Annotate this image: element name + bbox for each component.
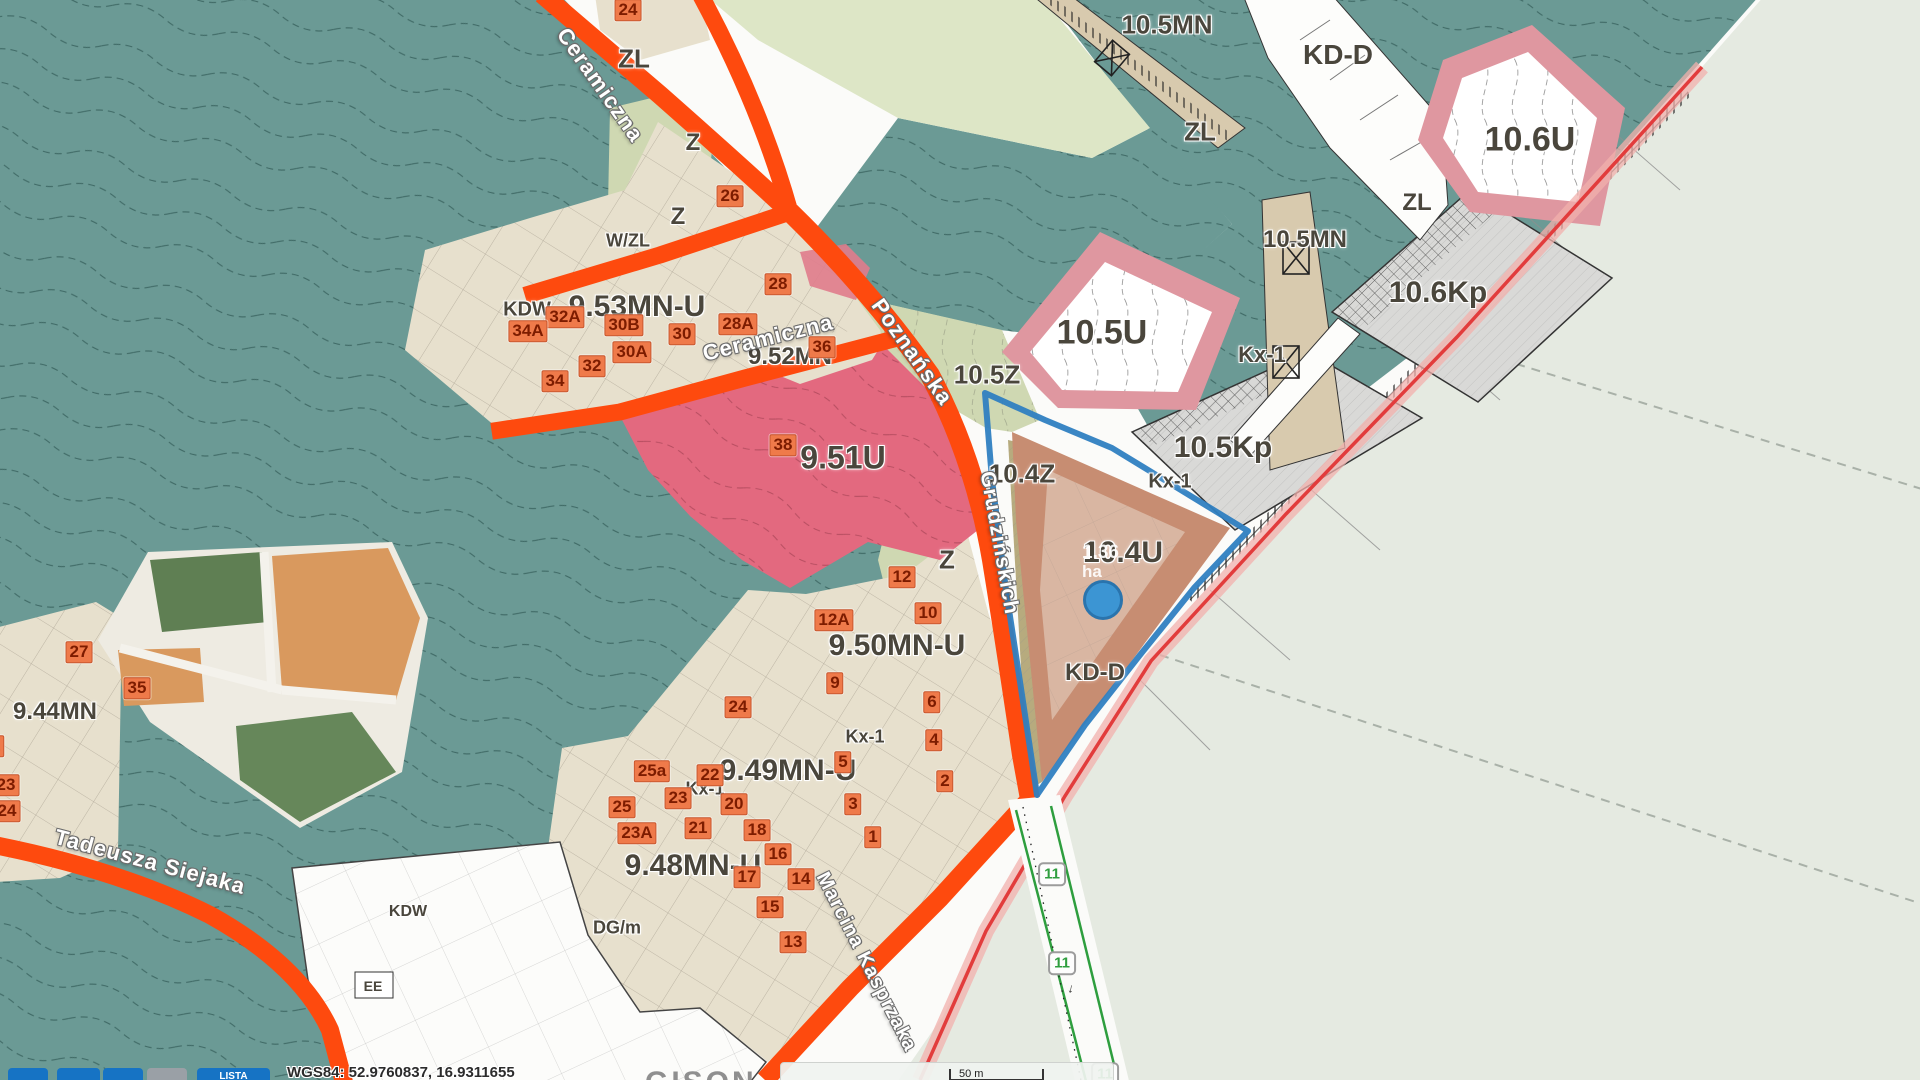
toolbar-button[interactable] (103, 1068, 143, 1080)
address-badge[interactable]: 28A (718, 313, 757, 335)
address-badge[interactable]: 14 (788, 868, 815, 890)
address-badge[interactable]: 30A (612, 341, 651, 363)
address-badge[interactable]: 26 (717, 185, 744, 207)
zone-label: EE (364, 978, 383, 994)
address-badge[interactable]: 35 (124, 677, 151, 699)
zone-label: 9.51U (800, 440, 885, 477)
scale-text: 50 m (959, 1068, 983, 1080)
address-badge[interactable]: 3 (844, 793, 861, 815)
selected-area-label: 1.36ha (1082, 543, 1119, 581)
address-badge[interactable]: 22 (697, 764, 724, 786)
zone-label: W/ZL (606, 231, 650, 252)
address-badge[interactable]: 24 (615, 0, 642, 21)
map-canvas[interactable]: ZLZZW/ZL9.53MN-UKDW9.52MN9.51U9.50MN-U9.… (0, 0, 1920, 1080)
zone-label: 10.5MN (1121, 10, 1212, 41)
address-badge[interactable]: 1 (864, 826, 881, 848)
address-badge[interactable]: 25a (634, 760, 670, 782)
zone-label: DG/m (593, 918, 641, 939)
address-badge[interactable]: 30 (669, 323, 696, 345)
address-badge[interactable]: 15 (757, 896, 784, 918)
zone-label: Kx-1 (1148, 471, 1191, 494)
address-badge[interactable]: 16 (765, 843, 792, 865)
address-badge[interactable]: 2 (0, 735, 5, 757)
toolbar-button[interactable] (147, 1068, 187, 1080)
coordinates-readout: WGS84: 52.9760837, 16.9311655 (287, 1064, 515, 1080)
zone-label: 10.5Kp (1174, 431, 1272, 465)
address-badge[interactable]: 27 (66, 641, 93, 663)
address-badge[interactable]: 23 (665, 787, 692, 809)
address-badge[interactable]: 32 (579, 355, 606, 377)
address-badge[interactable]: 23 (0, 774, 19, 796)
zone-label: KD-D (1065, 659, 1125, 687)
zone-label: 9.50MN-U (829, 629, 966, 663)
location-marker[interactable] (1083, 580, 1123, 620)
zone-label: Z (686, 129, 701, 157)
zone-label: 10.5MN (1263, 226, 1347, 254)
address-badge[interactable]: 24 (725, 696, 752, 718)
route-11-marker: 11 (1048, 951, 1076, 975)
zone-label: KDW (503, 299, 551, 322)
address-badge[interactable]: 38 (770, 434, 797, 456)
address-badge[interactable]: 23A (617, 822, 656, 844)
toolbar-button[interactable] (57, 1068, 100, 1080)
address-badge[interactable]: 21 (685, 817, 712, 839)
zone-label: KDW (389, 903, 427, 921)
zone-label: 10.5Z (954, 360, 1021, 391)
zone-label: ZL (1402, 189, 1431, 217)
address-badge[interactable]: 17 (734, 866, 761, 888)
zone-label: 10.6U (1485, 121, 1576, 160)
gison-watermark: GISON (645, 1066, 757, 1080)
scale-bar: 50 m (780, 1062, 1114, 1080)
zone-label: 9.44MN (13, 698, 97, 726)
toolbar-button[interactable] (8, 1068, 48, 1080)
zoning-map-graphic (0, 0, 1920, 1080)
zone-label: 10.5U (1057, 314, 1148, 353)
address-badge[interactable]: 12A (814, 609, 853, 631)
zone-label: Kx-1 (1238, 342, 1286, 368)
zone-label: ZL (1184, 117, 1216, 148)
address-badge[interactable]: 2 (936, 770, 953, 792)
address-badge[interactable]: 6 (923, 691, 940, 713)
address-badge[interactable]: 9 (826, 672, 843, 694)
address-badge[interactable]: 32A (545, 306, 584, 328)
address-badge[interactable]: 4 (925, 729, 942, 751)
address-badge[interactable]: 28 (765, 273, 792, 295)
address-badge[interactable]: 13 (780, 931, 807, 953)
address-badge[interactable]: 10 (915, 602, 942, 624)
address-badge[interactable]: 34A (508, 320, 547, 342)
address-badge[interactable]: 24 (0, 800, 20, 822)
zone-label: 10.6Kp (1389, 276, 1487, 310)
address-badge[interactable]: 36 (809, 336, 836, 358)
address-badge[interactable]: 18 (744, 819, 771, 841)
zone-label: Kx-1 (845, 727, 884, 748)
address-badge[interactable]: 30B (604, 314, 643, 336)
toolbar-button-lista[interactable]: LISTA (197, 1068, 270, 1080)
zone-label: Z (671, 203, 686, 231)
address-badge[interactable]: 34 (542, 370, 569, 392)
address-badge[interactable]: 5 (834, 751, 851, 773)
route-11-marker: 11 (1038, 862, 1066, 886)
address-badge[interactable]: 20 (721, 793, 748, 815)
zone-label: Z (939, 545, 955, 576)
address-badge[interactable]: 25 (609, 796, 636, 818)
zone-label: ZL (618, 44, 650, 75)
zone-label: KD-D (1303, 39, 1373, 71)
address-badge[interactable]: 12 (889, 566, 916, 588)
